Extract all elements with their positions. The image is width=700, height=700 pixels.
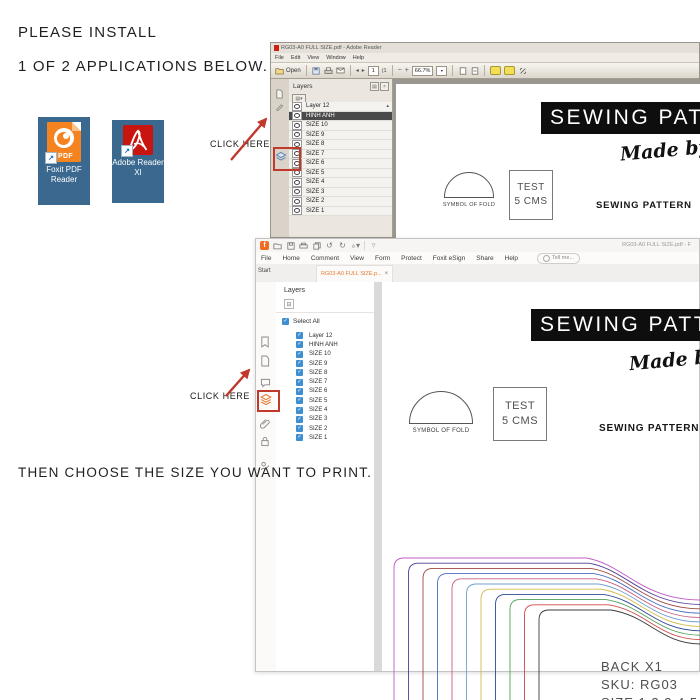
open-folder-icon[interactable] <box>273 241 282 250</box>
layer-name-label: SIZE 2 <box>309 426 327 432</box>
layer-name-label: SIZE 6 <box>306 160 324 166</box>
foxit-layer-row[interactable]: ✓SIZE 8 <box>296 368 374 377</box>
adobe-document-area: SEWING PATTERN Made by B SYMBOL OF FOLD … <box>393 79 699 237</box>
comment-icon[interactable] <box>490 66 501 75</box>
foxit-app-icon: PDF ↗ <box>47 122 81 162</box>
layer-checkbox-checked-icon[interactable]: ✓ <box>296 407 303 414</box>
layers-panel-title: Layers <box>284 287 305 294</box>
foxit-menu-protect[interactable]: Protect <box>401 255 422 262</box>
layer-checkbox-checked-icon[interactable]: ✓ <box>296 416 303 423</box>
foxit-reader-window: f ↺ ↻ ▾ ▽ RG03-A0 FULL SIZE.pdf - F File… <box>255 238 700 672</box>
pdf-page: SEWING PATTERN Made by B SYMBOL OF FOLD … <box>396 84 700 239</box>
customize-toolbar-chevron-icon[interactable]: ▽ <box>369 241 378 250</box>
layers-icon-highlight-box <box>257 390 280 412</box>
layer-name-label: SIZE 4 <box>306 179 324 185</box>
adobe-layer-row[interactable]: SIZE 7 <box>289 150 392 160</box>
adobe-pdf-icon <box>274 45 279 51</box>
choose-size-instruction: THEN CHOOSE THE SIZE YOU WANT TO PRINT. <box>18 465 372 480</box>
sewing-pattern-subtitle: SEWING PATTERN <box>596 200 700 211</box>
foxit-layer-list: ✓Layer 12✓HINH ANH✓SIZE 10✓SIZE 9✓SIZE 8… <box>296 331 374 443</box>
security-lock-icon[interactable] <box>260 434 270 452</box>
select-all-label: Select All <box>293 318 320 325</box>
layer-visibility-eye-icon[interactable] <box>292 121 302 130</box>
pdf-badge: PDF <box>58 153 73 160</box>
layer-name-label: SIZE 5 <box>306 170 324 176</box>
foxit-window-title: RG03-A0 FULL SIZE.pdf - F <box>622 242 691 248</box>
test-scale-box: TEST 5 CMS <box>509 170 553 220</box>
layer-name-label: SIZE 1 <box>309 435 327 441</box>
layer-checkbox-checked-icon[interactable]: ✓ <box>296 388 303 395</box>
adobe-layers-panel: Layers ▤ × ▤▾ Layer 12▴HINH ANHSIZE 10SI… <box>289 79 393 237</box>
layer-name-label: HINH ANH <box>306 113 335 119</box>
foxit-layer-row[interactable]: ✓HINH ANH <box>296 340 374 349</box>
layer-visibility-eye-icon[interactable] <box>292 102 302 111</box>
print-icon[interactable] <box>299 241 308 250</box>
foxit-menu-home[interactable]: Home <box>282 255 299 262</box>
tab-close-icon[interactable]: × <box>385 271 389 277</box>
fit-width-icon[interactable] <box>458 66 467 75</box>
panel-option-icon[interactable]: ▤ <box>370 82 379 91</box>
page-fold-icon <box>72 122 81 131</box>
made-by-script: Made by B <box>628 347 700 375</box>
page-count-label: (1 <box>382 68 387 74</box>
adobe-menu-file[interactable]: File <box>275 55 284 61</box>
foxit-tab-bar: Start RG03-A0 FULL SIZE.p... × <box>256 264 699 283</box>
fold-symbol-label: SYMBOL OF FOLD <box>436 202 502 208</box>
foxit-menu-share[interactable]: Share <box>476 255 493 262</box>
tell-me-label: Tell me... <box>552 255 574 261</box>
save-icon[interactable] <box>286 241 295 250</box>
layer-name-label: SIZE 1 <box>306 208 324 214</box>
foxit-layer-row[interactable]: ✓SIZE 1 <box>296 433 374 442</box>
pattern-piece-labels: BACK X1 SKU: RG03 SIZE:1,2,3,4,5,6,7 <box>601 658 700 700</box>
adobe-layer-row[interactable]: SIZE 8 <box>289 140 392 150</box>
collapse-all-icon[interactable]: ⊟ <box>284 299 294 309</box>
adobe-layer-row[interactable]: Layer 12▴ <box>289 102 392 112</box>
select-all-row[interactable]: ✓ Select All <box>282 318 320 325</box>
layer-name-label: SIZE 7 <box>306 151 324 157</box>
page-thumbnails-icon[interactable] <box>275 89 284 101</box>
foxit-document-area: SEWING PATTERN Made by B SYMBOL OF FOLD … <box>374 282 699 671</box>
sku-label: SKU: RG03 <box>601 676 700 694</box>
adobe-layer-row[interactable]: SIZE 4 <box>289 178 392 188</box>
layer-checkbox-checked-icon[interactable]: ✓ <box>296 425 303 432</box>
layer-name-label: SIZE 9 <box>306 132 324 138</box>
adobe-layer-row[interactable]: SIZE 3 <box>289 188 392 198</box>
layer-name-label: SIZE 10 <box>309 351 331 357</box>
redo-icon[interactable]: ↻ <box>338 241 347 250</box>
layers-panel-title: Layers <box>293 83 313 90</box>
adobe-layer-row[interactable]: SIZE 2 <box>289 197 392 207</box>
attachments-icon[interactable] <box>260 416 270 434</box>
sizes-label: SIZE:1,2,3,4,5,6,7 <box>601 694 700 700</box>
shortcut-arrow-icon: ↗ <box>121 145 133 157</box>
foxit-menu-help[interactable]: Help <box>505 255 518 262</box>
layer-name-label: SIZE 6 <box>309 388 327 394</box>
foxit-menu-foxit-esign[interactable]: Foxit eSign <box>433 255 466 262</box>
sewing-pattern-banner: SEWING PATTERN <box>531 309 700 341</box>
layer-visibility-eye-icon[interactable] <box>292 178 302 187</box>
shortcut-arrow-icon: ↗ <box>45 152 57 164</box>
desktop-icon-label: Foxit PDF Reader <box>38 165 90 184</box>
undo-icon[interactable]: ↺ <box>325 241 334 250</box>
adobe-layer-list: Layer 12▴HINH ANHSIZE 10SIZE 9SIZE 8SIZE… <box>289 102 392 216</box>
open-button[interactable]: Open <box>275 67 301 75</box>
layer-name-label: SIZE 5 <box>309 398 327 404</box>
foxit-logo-icon[interactable]: f <box>260 241 269 250</box>
next-page-button[interactable]: ▸ <box>362 67 365 74</box>
layer-visibility-eye-icon[interactable] <box>292 187 302 196</box>
folder-icon <box>275 67 284 75</box>
page-thumbnails-icon[interactable] <box>260 354 270 372</box>
adobe-layer-row[interactable]: SIZE 9 <box>289 131 392 141</box>
stamp-icon[interactable]: ▾ <box>351 241 360 250</box>
foxit-menu-file[interactable]: File <box>261 255 271 262</box>
adobe-menu-window[interactable]: Window <box>326 55 346 61</box>
layer-name-label: SIZE 3 <box>309 416 327 422</box>
foxit-layer-row[interactable]: ✓SIZE 5 <box>296 396 374 405</box>
layer-visibility-eye-icon[interactable] <box>292 130 302 139</box>
desktop-icon-label: Adobe Reader XI <box>112 158 164 177</box>
adobe-menu-help[interactable]: Help <box>353 55 364 61</box>
sewing-pattern-subtitle: SEWING PATTERN <box>599 423 700 434</box>
layer-checkbox-checked-icon[interactable]: ✓ <box>296 341 303 348</box>
layer-name-label: SIZE 9 <box>309 361 327 367</box>
email-icon[interactable] <box>336 66 345 75</box>
adobe-layer-row[interactable]: SIZE 10 <box>289 121 392 131</box>
adobe-layer-row[interactable]: SIZE 6 <box>289 159 392 169</box>
sewing-pattern-banner: SEWING PATTERN <box>541 102 700 134</box>
print-button[interactable] <box>324 66 333 75</box>
layer-name-label: Layer 12 <box>306 103 329 109</box>
layer-name-label: SIZE 3 <box>306 189 324 195</box>
layer-checkbox-checked-icon[interactable]: ✓ <box>296 379 303 386</box>
fold-symbol-label: SYMBOL OF FOLD <box>402 428 480 434</box>
layer-checkbox-checked-icon[interactable]: ✓ <box>296 360 303 367</box>
tab-start[interactable]: Start <box>258 268 271 274</box>
layer-checkbox-checked-icon[interactable]: ✓ <box>296 351 303 358</box>
tab-document[interactable]: RG03-A0 FULL SIZE.p... × <box>316 265 393 282</box>
foxit-layer-row[interactable]: ✓SIZE 9 <box>296 359 374 368</box>
expand-caret-icon[interactable]: ▴ <box>386 103 389 109</box>
click-here-arrow-adobe <box>226 110 274 166</box>
test-scale-box: TEST 5 CMS <box>493 387 547 441</box>
layer-name-label: SIZE 8 <box>309 370 327 376</box>
layer-checkbox-checked-icon[interactable]: ✓ <box>296 397 303 404</box>
desktop-icon-foxit[interactable]: PDF ↗ Foxit PDF Reader <box>38 117 90 205</box>
install-instruction-line1: PLEASE INSTALL <box>18 24 157 41</box>
layers-icon-highlight-box <box>273 147 301 171</box>
adobe-menu-view[interactable]: View <box>307 55 319 61</box>
adobe-menu-edit[interactable]: Edit <box>291 55 300 61</box>
adobe-titlebar[interactable]: RG03-A0 FULL SIZE.pdf - Adobe Reader <box>271 43 699 53</box>
adobe-menubar: FileEditViewWindowHelp <box>271 53 699 62</box>
checkbox-checked-icon[interactable]: ✓ <box>282 318 289 325</box>
desktop-icon-adobe[interactable]: ↗ Adobe Reader XI <box>112 120 164 203</box>
fit-page-icon[interactable] <box>470 66 479 75</box>
adobe-toolbar: Open ◂ ▸ 1 (1 − + 66.7% ▾ <box>271 62 699 79</box>
save-button[interactable] <box>312 66 321 75</box>
zoom-level-select[interactable]: 66.7% <box>412 66 434 76</box>
layer-name-label: SIZE 10 <box>306 122 328 128</box>
zoom-in-button[interactable]: + <box>405 67 409 74</box>
layer-name-label: Layer 12 <box>309 333 332 339</box>
layer-name-label: HINH ANH <box>309 342 338 348</box>
foxit-menu-view[interactable]: View <box>350 255 364 262</box>
fold-symbol-semicircle <box>444 172 494 198</box>
adobe-layer-row[interactable]: SIZE 5 <box>289 169 392 179</box>
foxit-layer-row[interactable]: ✓Layer 12 <box>296 331 374 340</box>
zoom-out-button[interactable]: − <box>398 67 402 74</box>
made-by-script: Made by B <box>619 136 700 165</box>
layer-name-label: SIZE 4 <box>309 407 327 413</box>
prev-page-button[interactable]: ◂ <box>356 67 359 74</box>
bookmarks-icon[interactable] <box>260 335 270 353</box>
foxit-menubar: FileHomeCommentViewFormProtectFoxit eSig… <box>256 252 699 264</box>
install-instruction-line2: 1 OF 2 APPLICATIONS BELOW. <box>18 58 268 75</box>
foxit-menu-comment[interactable]: Comment <box>311 255 339 262</box>
layer-checkbox-checked-icon[interactable]: ✓ <box>296 332 303 339</box>
layer-checkbox-checked-icon[interactable]: ✓ <box>296 369 303 376</box>
foxit-layer-row[interactable]: ✓SIZE 7 <box>296 377 374 386</box>
adobe-app-icon: ↗ <box>123 125 153 155</box>
adobe-reader-window: RG03-A0 FULL SIZE.pdf - Adobe Reader Fil… <box>270 42 700 238</box>
signature-pen-icon[interactable] <box>275 102 284 113</box>
fold-symbol-semicircle <box>409 391 473 424</box>
foxit-layer-row[interactable]: ✓SIZE 10 <box>296 350 374 359</box>
layer-visibility-eye-icon[interactable] <box>292 206 302 215</box>
fullscreen-icon[interactable] <box>518 66 527 75</box>
search-bulb-icon <box>543 255 550 262</box>
foxit-layer-row[interactable]: ✓SIZE 4 <box>296 405 374 414</box>
tutorial-image: PLEASE INSTALL 1 OF 2 APPLICATIONS BELOW… <box>0 0 700 700</box>
layer-name-label: SIZE 7 <box>309 379 327 385</box>
foxit-layer-row[interactable]: ✓SIZE 3 <box>296 415 374 424</box>
annotate-icon[interactable] <box>504 66 515 75</box>
layer-name-label: SIZE 2 <box>306 198 324 204</box>
adobe-window-title: RG03-A0 FULL SIZE.pdf - Adobe Reader <box>281 45 382 51</box>
tell-me-search[interactable]: Tell me... <box>537 253 580 264</box>
adobe-layer-row[interactable]: SIZE 1 <box>289 207 392 217</box>
foxit-layer-row[interactable]: ✓SIZE 6 <box>296 387 374 396</box>
foxit-layer-row[interactable]: ✓SIZE 2 <box>296 424 374 433</box>
pages-icon[interactable] <box>312 241 321 250</box>
layer-visibility-eye-icon[interactable] <box>292 197 302 206</box>
panel-close-icon[interactable]: × <box>380 82 389 91</box>
page-number-input[interactable]: 1 <box>368 66 379 76</box>
layer-name-label: SIZE 8 <box>306 141 324 147</box>
foxit-menu-form[interactable]: Form <box>375 255 390 262</box>
layer-visibility-eye-icon[interactable] <box>292 111 302 120</box>
zoom-dropdown-button[interactable]: ▾ <box>436 66 447 76</box>
adobe-layer-row[interactable]: HINH ANH <box>289 112 392 122</box>
layer-checkbox-checked-icon[interactable]: ✓ <box>296 434 303 441</box>
piece-name-label: BACK X1 <box>601 658 700 676</box>
click-here-arrow-foxit <box>222 363 256 399</box>
foxit-swirl-icon <box>54 128 74 148</box>
